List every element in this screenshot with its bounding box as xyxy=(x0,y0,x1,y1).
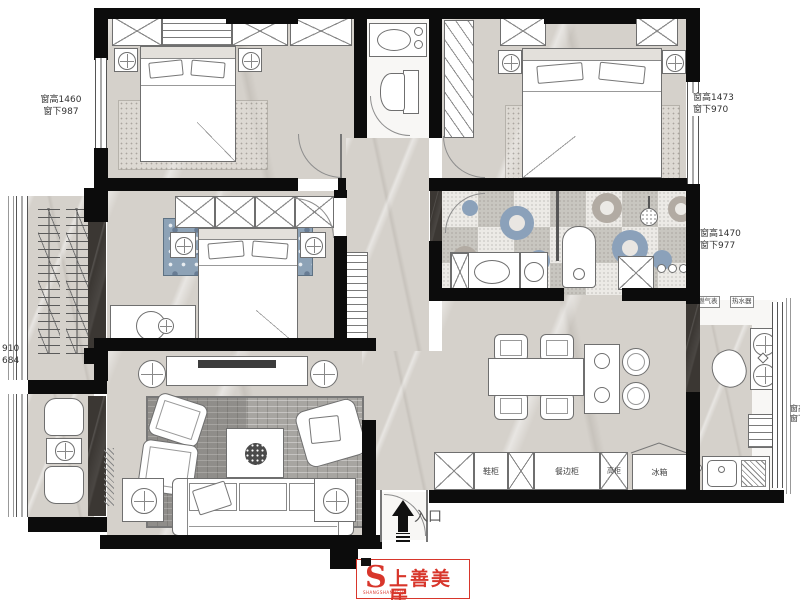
wall xyxy=(28,380,107,394)
bed xyxy=(198,228,298,346)
entry-cabinet xyxy=(508,452,534,490)
headboard xyxy=(199,229,297,240)
wall xyxy=(94,8,108,60)
partition-wall xyxy=(556,191,559,261)
wardrobe xyxy=(500,16,546,46)
blanket-fold xyxy=(523,136,575,177)
wall xyxy=(622,288,691,301)
wall xyxy=(429,288,564,301)
sink-basin xyxy=(377,29,411,51)
entry-cabinet xyxy=(434,452,474,490)
wall xyxy=(429,490,784,503)
faucet-knob xyxy=(414,40,423,49)
window-label-top-left: 窗高1460 窗下987 xyxy=(28,95,94,118)
valve xyxy=(573,268,585,280)
wall xyxy=(334,236,347,348)
wardrobe xyxy=(175,196,215,228)
wall xyxy=(94,338,376,351)
window-label-mid-right: 窗高1470 窗下977 xyxy=(700,229,741,252)
headboard xyxy=(523,49,661,61)
headboard xyxy=(141,47,235,59)
chair-seat xyxy=(627,353,645,371)
sideboard-cabinet: 餐边柜 xyxy=(534,452,600,490)
window-label-left-edge: 910 684 xyxy=(2,344,36,367)
entrance-arrow-shaft xyxy=(398,516,408,532)
threshold-dark-marble xyxy=(88,222,106,348)
balcony-chair xyxy=(44,466,84,504)
cabinet xyxy=(451,253,469,291)
shoe-cabinet: 鞋柜 xyxy=(474,452,508,490)
wall xyxy=(362,420,376,535)
pillow xyxy=(251,240,288,259)
drying-rack xyxy=(38,208,60,354)
plant-icon xyxy=(158,318,174,334)
blanket-line xyxy=(199,265,297,266)
burner xyxy=(668,264,677,273)
door-frame xyxy=(380,490,382,542)
wardrobe xyxy=(215,196,255,228)
plant-icon xyxy=(175,237,193,255)
pillow xyxy=(598,62,646,85)
faucet-knob xyxy=(414,27,423,36)
pillow xyxy=(190,60,225,79)
plant-icon xyxy=(666,54,684,72)
wall xyxy=(84,188,108,222)
tile-circle xyxy=(500,206,534,240)
plant-icon xyxy=(55,441,75,461)
logo-s-icon: S xyxy=(365,563,387,593)
wall xyxy=(334,190,347,198)
plant-icon xyxy=(131,488,157,514)
threshold-dark-marble xyxy=(430,191,442,241)
sink-basin xyxy=(707,460,737,487)
blanket-line xyxy=(141,85,235,86)
wall xyxy=(429,241,442,295)
drain xyxy=(718,466,725,473)
wall xyxy=(100,535,382,549)
cabinet xyxy=(618,256,654,290)
drying-rack xyxy=(66,208,88,354)
balcony-glazing xyxy=(8,394,14,517)
balcony-glazing xyxy=(786,298,791,494)
sofa-back-line xyxy=(189,526,337,527)
sink-basin xyxy=(474,260,510,284)
wall xyxy=(686,184,700,304)
fridge-door-swing xyxy=(630,442,688,454)
dish-rack xyxy=(748,414,774,448)
blanket-fold xyxy=(197,122,235,161)
fridge: 冰箱 xyxy=(632,454,687,490)
water-heater-tag: 热水器 xyxy=(730,296,754,308)
decor-tray xyxy=(245,443,267,465)
round-chair xyxy=(622,348,650,376)
wall xyxy=(686,8,700,82)
pillow xyxy=(536,62,583,84)
window-label-bottom-right-clipped: 窗高 窗下 xyxy=(790,404,800,425)
pillow xyxy=(148,59,183,78)
wardrobe-hanging xyxy=(444,20,474,138)
floor-plan: 鞋柜 餐边柜 高柜 冰箱 燃气表 热水器 xyxy=(0,0,800,600)
pillow xyxy=(207,240,244,259)
shoe-cabinet-label: 鞋柜 xyxy=(483,466,499,477)
dining-table xyxy=(488,358,584,396)
wall-pier xyxy=(330,549,358,569)
closet-cabinet xyxy=(290,16,352,46)
pillow xyxy=(309,415,342,444)
wardrobe xyxy=(112,16,162,46)
plant-icon xyxy=(502,54,520,72)
chair-seat xyxy=(546,340,568,356)
brand-logo: S SHANGSHANMEIJU 上善美居 xyxy=(356,559,470,599)
entrance-arrow-icon xyxy=(392,500,414,516)
plant-icon xyxy=(138,360,166,388)
drainboard xyxy=(741,460,766,487)
wardrobe-shelf xyxy=(162,16,232,46)
wall xyxy=(429,178,691,191)
bed xyxy=(140,46,236,162)
plant-icon xyxy=(310,360,338,388)
plant-icon xyxy=(118,52,136,70)
plant-icon xyxy=(323,488,349,514)
wall xyxy=(94,178,298,191)
wall xyxy=(94,351,108,381)
wall-pier xyxy=(226,8,298,24)
wall xyxy=(354,8,367,138)
burner xyxy=(657,264,666,273)
window xyxy=(772,302,783,488)
wall xyxy=(28,517,107,532)
window xyxy=(95,58,107,150)
shower-head-icon xyxy=(640,208,658,226)
sofa-cushion xyxy=(239,483,287,511)
plant-icon xyxy=(242,52,260,70)
place-setting xyxy=(594,387,610,403)
washer-drum xyxy=(524,262,544,282)
wall xyxy=(429,8,442,138)
plant-icon xyxy=(305,237,323,255)
entrance-label: 入口 xyxy=(414,508,442,526)
dining-chair xyxy=(540,392,574,420)
dining-chair xyxy=(494,392,528,420)
tile-circle xyxy=(592,193,622,223)
logo-name: 上善美居 xyxy=(389,570,469,600)
balcony-chair xyxy=(44,398,84,436)
tall-cabinet-label: 高柜 xyxy=(600,452,628,490)
fridge-label: 冰箱 xyxy=(652,467,668,478)
coffee-table xyxy=(226,428,284,478)
chair-seat xyxy=(627,387,645,405)
door-leaf xyxy=(340,134,342,178)
wall-pier xyxy=(544,8,636,24)
entrance-arrow-hatch xyxy=(396,533,410,542)
wall xyxy=(686,392,700,492)
radiator xyxy=(104,448,114,506)
chair-seat xyxy=(500,398,522,414)
wardrobe xyxy=(255,196,295,228)
threshold-dark-marble xyxy=(686,304,700,392)
chair-seat xyxy=(500,340,522,356)
cushion xyxy=(155,400,200,440)
window xyxy=(16,394,28,517)
chair-seat xyxy=(546,398,568,414)
window-label-top-right: 窗高1473 窗下970 xyxy=(692,93,735,116)
wardrobe xyxy=(636,16,678,46)
round-chair xyxy=(622,382,650,410)
island-table xyxy=(584,344,620,414)
sideboard-label: 餐边柜 xyxy=(555,466,579,477)
blanket-line xyxy=(523,91,661,92)
place-setting xyxy=(594,353,610,369)
tv xyxy=(198,360,276,368)
sofa-armrest xyxy=(173,479,188,535)
bed xyxy=(522,48,662,178)
